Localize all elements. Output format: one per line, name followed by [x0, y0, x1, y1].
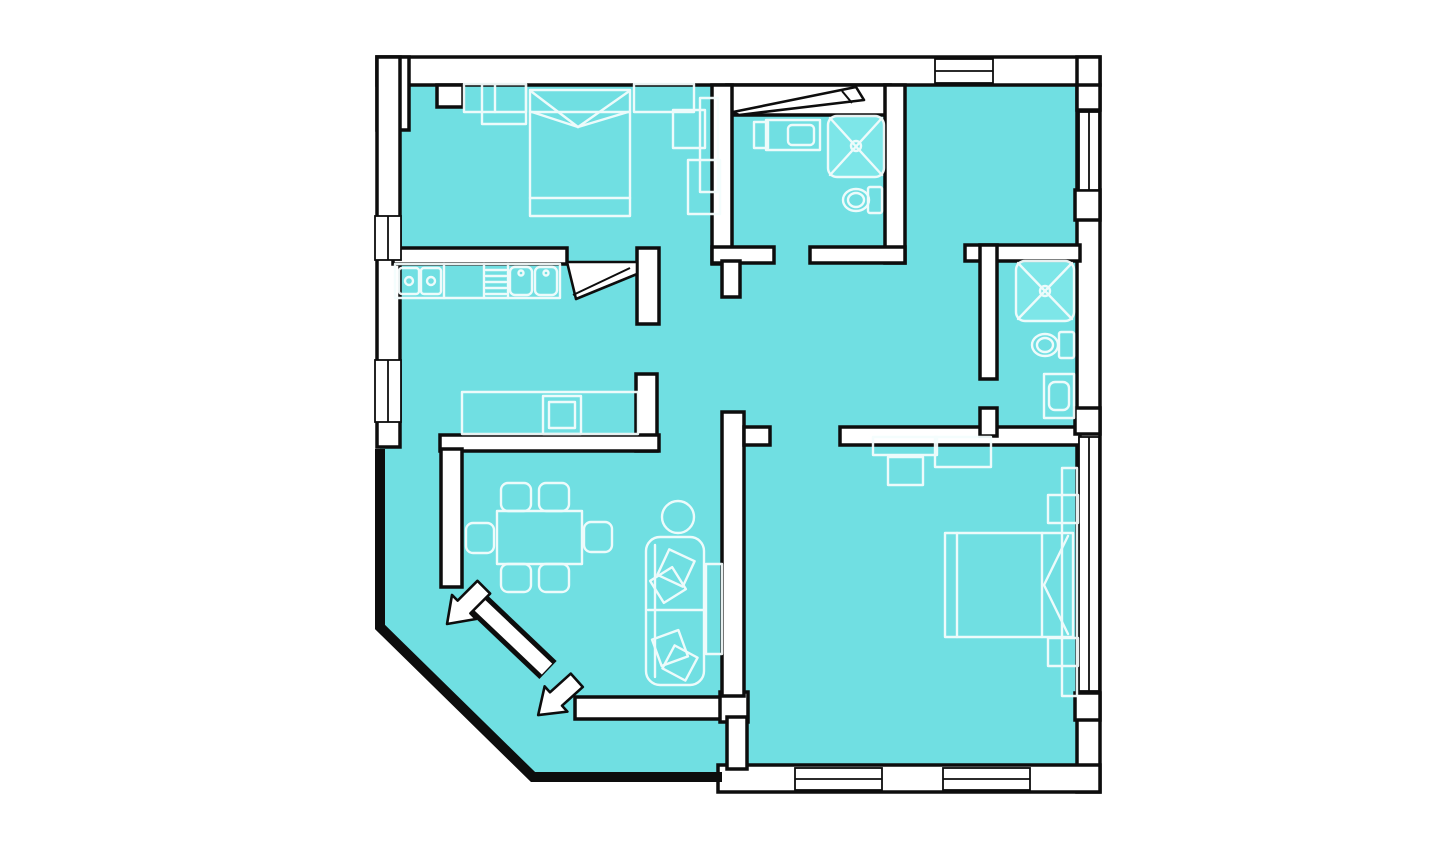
wall-bottom	[718, 765, 1100, 792]
wall-bath1-left	[712, 85, 732, 264]
floor-plan	[0, 0, 1445, 850]
wall-bath2-left-stub	[980, 408, 997, 436]
wall-hall-divider	[810, 247, 905, 263]
pier-right-c	[1075, 693, 1100, 720]
wall-bedroom2-left	[722, 412, 744, 696]
wall-bath1-door-stub	[722, 261, 740, 297]
pier-top-bedroom1	[437, 85, 463, 107]
wall-bedroom1-stub	[637, 248, 659, 324]
pier-right-a	[1075, 190, 1100, 220]
wall-bath1-right	[885, 85, 905, 263]
wall-balcony-vertical	[441, 449, 462, 587]
wall-bedroom2-left-lower	[727, 717, 747, 769]
wall-living-bottom	[575, 697, 725, 719]
wall-bedroom2-left-arm	[744, 427, 770, 445]
pier-right-b	[1075, 408, 1100, 434]
wall-kitchen-bottom	[440, 435, 659, 451]
floor-plan-page	[0, 0, 1445, 850]
pier-top-right-corner	[1077, 85, 1100, 110]
wall-bedroom1-bottom	[393, 248, 567, 264]
wall-bath2-left	[980, 245, 997, 379]
